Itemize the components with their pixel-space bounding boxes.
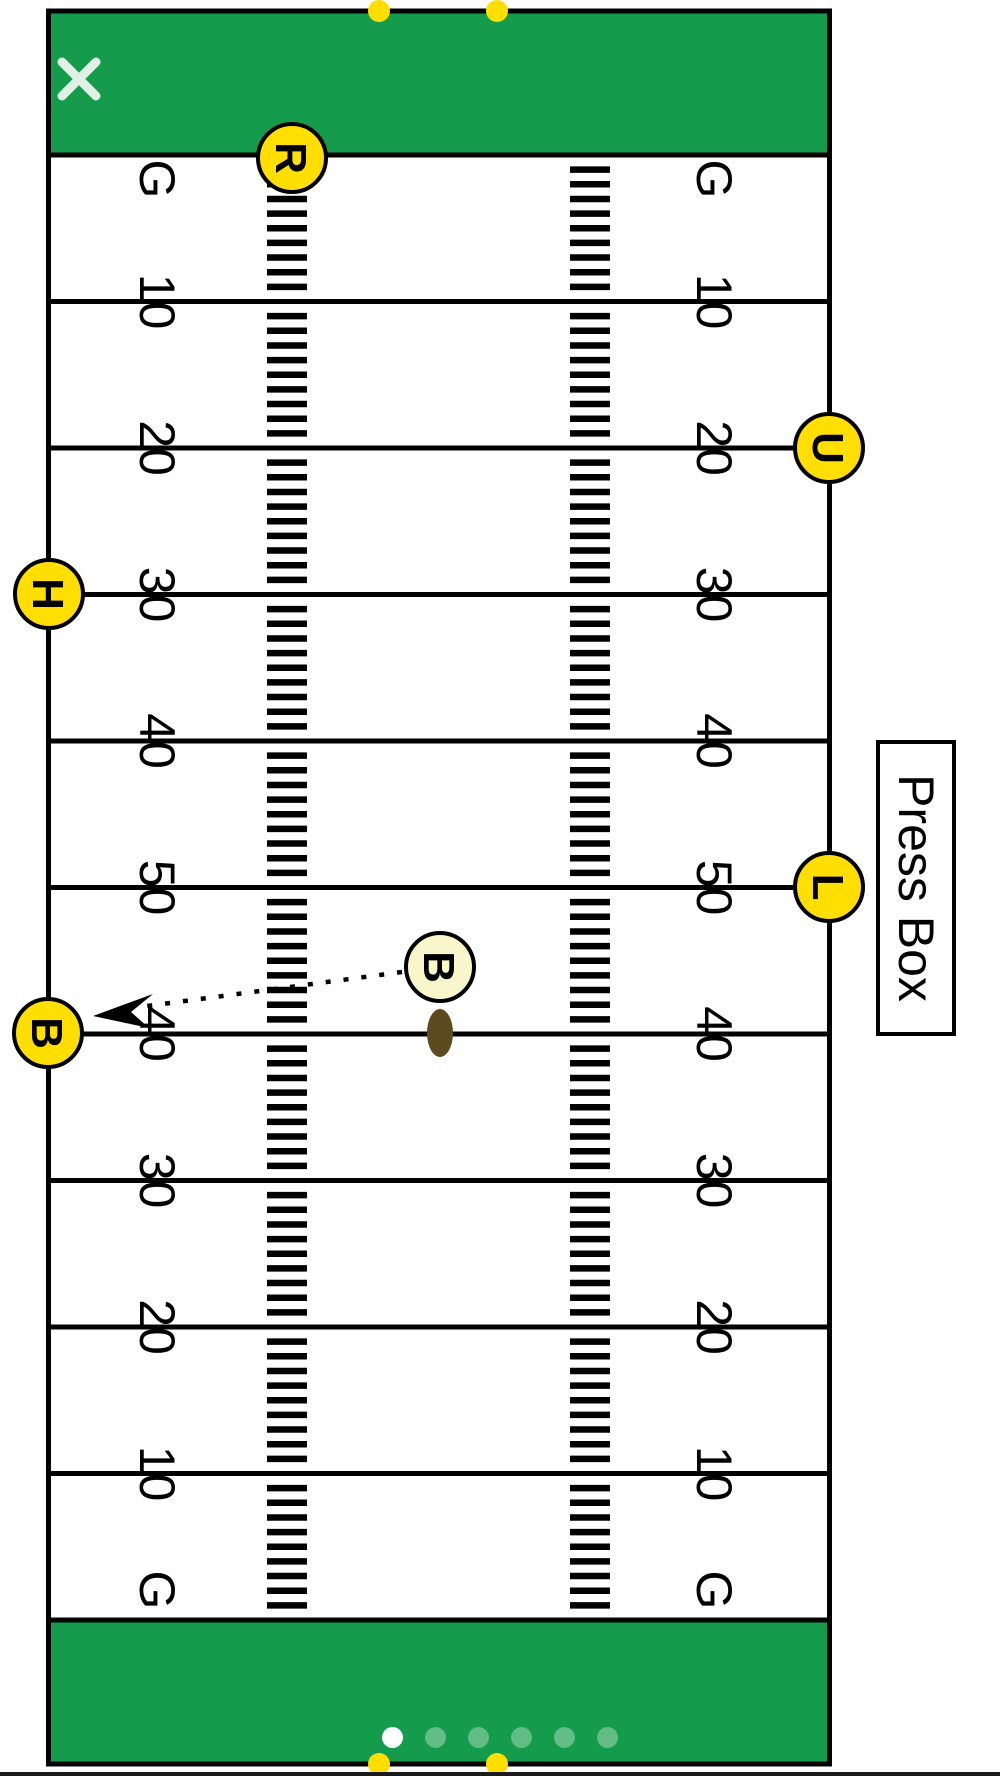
page-dot-active[interactable] — [382, 1727, 403, 1748]
end-zone-top — [49, 11, 830, 155]
press-box-text: Press Box — [887, 774, 945, 1002]
yard-number: 30 — [129, 567, 185, 623]
goal-label: G — [129, 160, 185, 199]
yard-number: 20 — [686, 1299, 742, 1355]
page-dot[interactable] — [597, 1727, 618, 1748]
screen-bottom-divider — [0, 1772, 1000, 1776]
yard-number: 50 — [686, 860, 742, 916]
field-diagram: GG101020203030404050504040303020201010GG… — [0, 0, 1000, 1778]
page-indicator — [0, 1727, 1000, 1748]
yard-number: 40 — [686, 1006, 742, 1062]
yard-number: 10 — [129, 1446, 185, 1502]
yard-number: 30 — [686, 567, 742, 623]
yard-number: 30 — [129, 1153, 185, 1209]
goal-label: G — [686, 1571, 742, 1610]
goal-label: G — [129, 1571, 185, 1610]
yard-number: 40 — [129, 1006, 185, 1062]
page-dot[interactable] — [425, 1727, 446, 1748]
pylon-dot — [368, 0, 390, 22]
page-dot[interactable] — [468, 1727, 489, 1748]
yard-number: 10 — [686, 1446, 742, 1502]
page-dot[interactable] — [554, 1727, 575, 1748]
page-dot[interactable] — [511, 1727, 532, 1748]
official-letter-B: B — [22, 1017, 71, 1049]
yard-number: 40 — [129, 713, 185, 769]
official-letter-R: R — [266, 142, 315, 174]
official-letter-H: H — [23, 578, 72, 610]
yard-number: 10 — [686, 274, 742, 330]
press-box-label: Press Box — [876, 740, 956, 1036]
yard-number: 10 — [129, 274, 185, 330]
close-button[interactable] — [54, 54, 104, 104]
official-letter-U: U — [803, 432, 852, 464]
yard-number: 20 — [129, 1299, 185, 1355]
yard-number: 50 — [129, 860, 185, 916]
football — [427, 1009, 453, 1057]
official-letter-B: B — [414, 951, 463, 983]
close-icon — [54, 54, 104, 104]
yard-number: 40 — [686, 713, 742, 769]
yard-number: 30 — [686, 1153, 742, 1209]
pylon-dot — [486, 0, 508, 22]
screen: GG101020203030404050504040303020201010GG… — [0, 0, 1000, 1778]
goal-label: G — [686, 160, 742, 199]
yard-number: 20 — [129, 420, 185, 476]
official-letter-L: L — [803, 874, 852, 901]
yard-number: 20 — [686, 420, 742, 476]
